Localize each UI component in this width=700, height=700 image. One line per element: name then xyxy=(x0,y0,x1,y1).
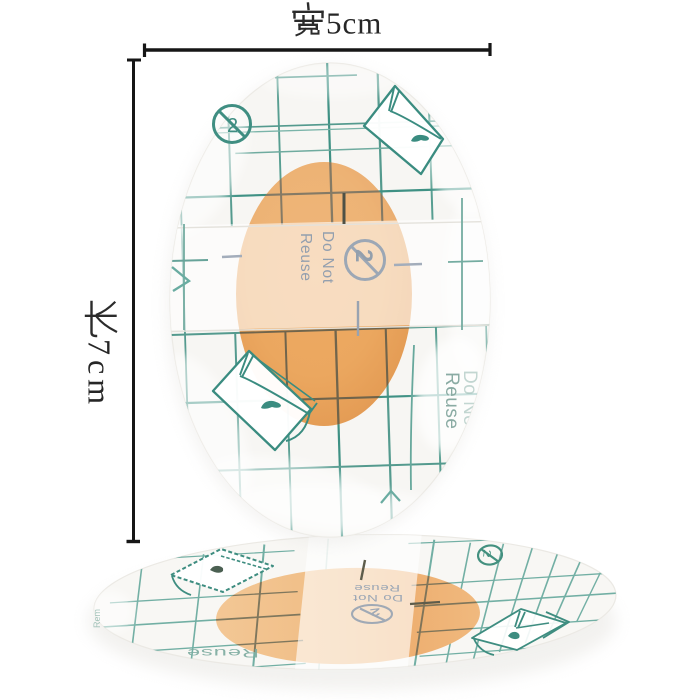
svg-text:5cm: 5cm xyxy=(326,6,382,41)
svg-text:Rem: Rem xyxy=(92,609,102,628)
svg-text:2: 2 xyxy=(481,549,494,559)
svg-text:Do Not: Do Not xyxy=(319,231,336,284)
svg-text:Reuse: Reuse xyxy=(441,372,462,429)
svg-text:Reuse: Reuse xyxy=(186,646,259,659)
svg-text:2: 2 xyxy=(350,249,377,262)
svg-text:2: 2 xyxy=(369,605,381,618)
svg-text:2: 2 xyxy=(227,115,238,137)
svg-text:7cm: 7cm xyxy=(82,339,118,409)
svg-text:Reuse: Reuse xyxy=(297,233,314,282)
svg-text:Do Not: Do Not xyxy=(353,593,403,603)
svg-text:Reuse: Reuse xyxy=(354,583,400,593)
